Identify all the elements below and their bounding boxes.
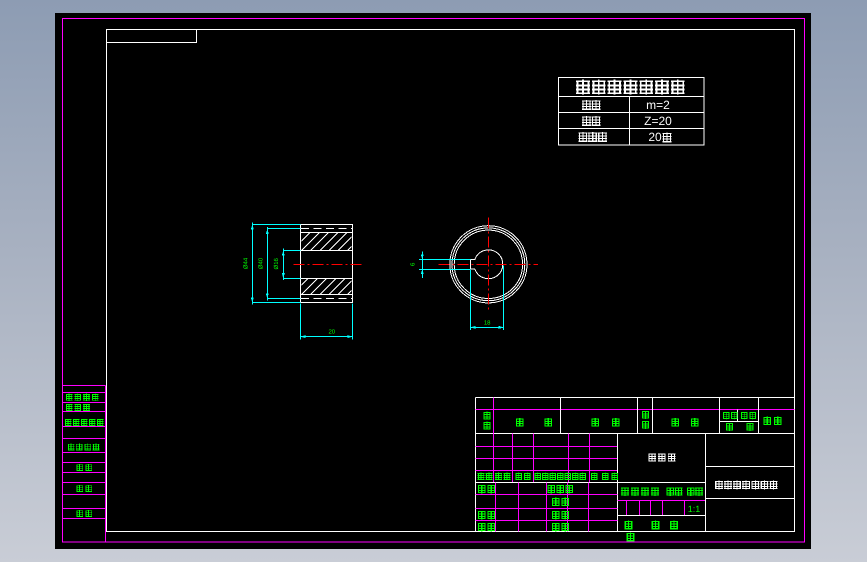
svg-text:Ø44: Ø44: [243, 257, 250, 269]
svg-text:1:1: 1:1: [688, 504, 701, 514]
svg-text:Z=20: Z=20: [644, 114, 672, 128]
svg-text:18: 18: [484, 320, 491, 327]
svg-text:Ø40: Ø40: [257, 257, 264, 269]
svg-text:m=2: m=2: [646, 98, 670, 112]
svg-text:20: 20: [328, 329, 335, 336]
svg-text:20: 20: [648, 130, 662, 144]
svg-text:Ø16: Ø16: [273, 257, 280, 269]
